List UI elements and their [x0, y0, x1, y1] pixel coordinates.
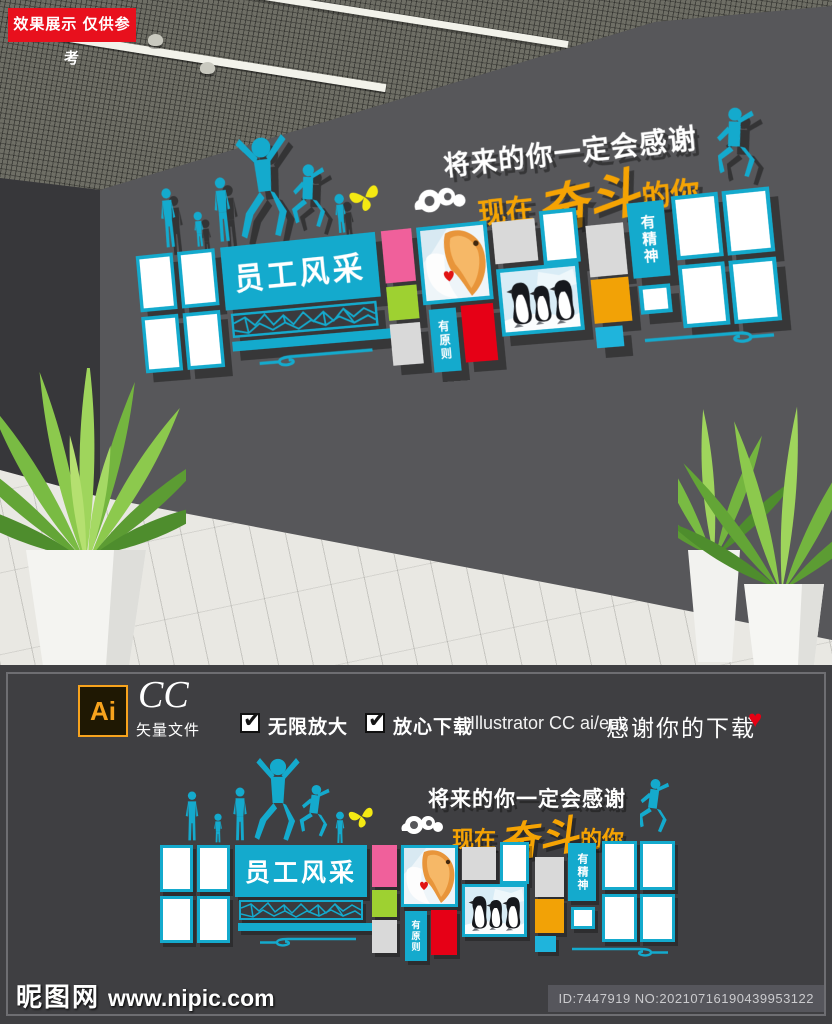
- cloud-line-icon: [258, 935, 358, 948]
- light-track: [251, 0, 568, 48]
- photo-frame: [678, 261, 731, 328]
- photo-frame: [571, 907, 595, 929]
- file-type-label: 矢量文件: [136, 719, 200, 740]
- software-format-label: Illustrator CC ai/eps: [470, 713, 628, 734]
- lattice-band: [239, 900, 363, 920]
- butterfly-icon: [348, 803, 376, 829]
- room-scene: 将来的你一定会感谢 现在奋斗的你 员工风采: [0, 0, 832, 665]
- image-id-label: ID:7447919 NO:20210716190439953122: [548, 985, 824, 1012]
- photo-frame: [721, 186, 775, 255]
- color-block-red: [461, 303, 499, 363]
- photo-frame: [136, 252, 178, 312]
- color-block-pink: [381, 228, 416, 283]
- photo-frame: [197, 845, 230, 892]
- runner-icon: [640, 777, 676, 839]
- photo-frame: [141, 314, 183, 374]
- photo-frame: [602, 894, 637, 942]
- culture-wall-collage: 将来的你一定会感谢 现在奋斗的你 员工风采: [150, 755, 680, 967]
- cc-label: CC: [138, 673, 189, 717]
- color-block-gray: [492, 218, 539, 264]
- color-block-orange: [535, 899, 564, 933]
- color-block-gray: [462, 847, 496, 880]
- auspicious-cloud-icon: [398, 813, 446, 837]
- feature-safe-download: 放心下载: [393, 712, 473, 739]
- thanks-label: 感谢你的下载: [606, 709, 756, 743]
- feature-unlimited-zoom: 无限放大: [268, 712, 348, 739]
- cloud-line-icon: [570, 945, 670, 958]
- color-block-green: [372, 890, 397, 917]
- photo-frame: [671, 192, 724, 261]
- spotlight-icon: [148, 34, 163, 46]
- board-base-bar: [238, 923, 372, 931]
- photo-frame: [197, 896, 230, 943]
- cloud-line-icon: [642, 325, 778, 353]
- people-silhouettes-icon: [178, 755, 348, 843]
- board-title-panel: 员工风采: [220, 232, 381, 311]
- strip-principle: 有原则: [405, 911, 427, 961]
- strip-spirit: 有精神: [626, 200, 670, 279]
- spotlight-icon: [200, 62, 215, 74]
- photo-frame: [500, 842, 529, 884]
- butterfly-icon: [347, 179, 384, 215]
- stock-preview-page: 将来的你一定会感谢 现在奋斗的你 员工风采: [0, 0, 832, 1024]
- runner-icon: [713, 102, 770, 189]
- dog-photo: [416, 221, 494, 306]
- photo-frame: [602, 841, 637, 890]
- illustrator-logo-icon: Ai: [78, 685, 128, 737]
- photo-frame: [160, 896, 193, 943]
- checked-checkbox-icon: ✔: [240, 713, 260, 733]
- penguin-photo: [462, 884, 527, 937]
- color-block-red: [431, 910, 457, 955]
- culture-wall-flat: 将来的你一定会感谢 现在奋斗的你 员工风采: [150, 755, 680, 967]
- color-block-pink: [372, 845, 397, 887]
- penguin-photo: [496, 262, 585, 337]
- color-block-gray: [390, 322, 424, 366]
- photo-frame: [183, 310, 226, 370]
- site-name: 昵图网: [16, 982, 100, 1012]
- color-block-cyan: [535, 936, 556, 952]
- color-block-gray: [535, 857, 564, 897]
- heart-icon: ♥: [748, 706, 762, 734]
- color-block-gray: [372, 920, 397, 953]
- photo-frame: [728, 257, 782, 325]
- dog-photo: [401, 845, 458, 907]
- potted-plant-left: [0, 368, 186, 665]
- color-block-cyan: [595, 325, 624, 348]
- color-block-gray: [585, 222, 628, 277]
- photo-frame: [638, 283, 672, 314]
- photo-frame: [539, 208, 581, 265]
- info-panel: Ai CC 矢量文件 ✔ 无限放大 ✔ 放心下载 Illustrator CC …: [0, 665, 832, 1024]
- photo-frame: [160, 845, 193, 892]
- sample-badge: 效果展示 仅供参考: [8, 8, 136, 42]
- auspicious-cloud-icon: [409, 182, 471, 218]
- cloud-line-icon: [257, 345, 376, 371]
- color-block-green: [386, 284, 420, 320]
- potted-plants-right: [678, 388, 832, 665]
- site-url: www.nipic.com: [108, 985, 275, 1011]
- people-silhouettes-icon: [146, 123, 352, 252]
- watermark: 昵图网www.nipic.com: [16, 977, 275, 1014]
- color-block-orange: [591, 277, 633, 324]
- strip-spirit: 有精神: [568, 843, 596, 901]
- board-title-panel: 员工风采: [235, 845, 367, 897]
- strip-principle: 有原则: [429, 307, 462, 372]
- checked-checkbox-icon: ✔: [365, 713, 385, 733]
- photo-frame: [640, 841, 675, 890]
- photo-frame: [177, 248, 220, 308]
- photo-frame: [640, 894, 675, 942]
